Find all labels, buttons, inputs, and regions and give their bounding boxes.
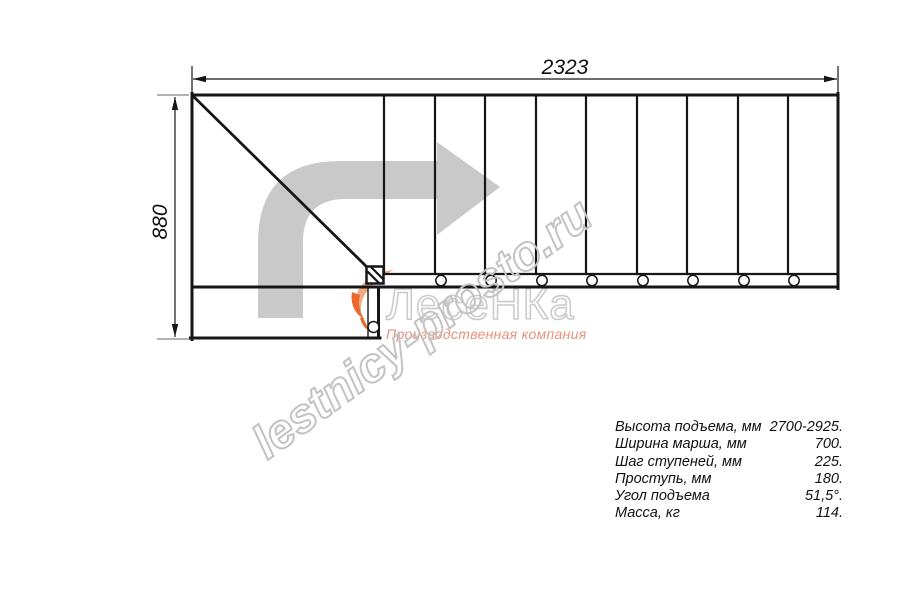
width-dimension: 2323	[192, 56, 838, 92]
specs-table: Высота подъема, мм 2700-2925. Ширина мар…	[615, 419, 843, 523]
spec-label: Шаг ступеней, мм	[615, 454, 742, 471]
spec-row-step-pitch: Шаг ступеней, мм 225.	[615, 454, 843, 471]
spec-value: 51,5°.	[805, 488, 843, 505]
spec-label: Проступь, мм	[615, 471, 711, 488]
dimension-arrowhead	[172, 324, 178, 337]
company-logo: ЛесеНКа Производственная компания	[352, 270, 587, 342]
spec-label: Высота подъема, мм	[615, 419, 762, 436]
width-dimension-label: 2323	[541, 56, 589, 79]
baluster-circle	[638, 275, 648, 285]
baluster-circle	[587, 275, 597, 285]
spec-value: 700.	[815, 436, 843, 453]
spec-value: 180.	[815, 471, 843, 488]
baluster-circle	[537, 275, 547, 285]
dimension-arrowhead	[193, 76, 206, 82]
spec-label: Угол подъема	[615, 488, 710, 505]
height-dimension: 880	[149, 95, 189, 339]
spec-label: Ширина марша, мм	[615, 436, 747, 453]
spec-row-flight-width: Ширина марша, мм 700.	[615, 436, 843, 453]
baluster-circle	[688, 275, 698, 285]
spec-row-climb-angle: Угол подъема 51,5°.	[615, 488, 843, 505]
spec-row-mass: Масса, кг 114.	[615, 505, 843, 522]
logo-subtitle-text: Производственная компания	[386, 326, 587, 342]
center-post	[367, 267, 384, 284]
spec-row-lift-height: Высота подъема, мм 2700-2925.	[615, 419, 843, 436]
height-dimension-label: 880	[149, 204, 172, 239]
spec-value: 114.	[816, 505, 843, 522]
spec-label: Масса, кг	[615, 505, 680, 522]
spec-row-tread-depth: Проступь, мм 180.	[615, 471, 843, 488]
baluster-circle	[486, 275, 496, 285]
spec-value: 2700-2925.	[770, 419, 843, 436]
baluster-circle	[368, 322, 379, 333]
dimension-arrowhead	[172, 97, 178, 110]
spec-value: 225.	[815, 454, 843, 471]
dimension-arrowhead	[824, 76, 837, 82]
baluster-circle	[739, 275, 749, 285]
staircase-drawing-page: ЛесеНКа Производственная компания	[0, 0, 900, 600]
baluster-circle	[789, 275, 799, 285]
baluster-circle	[436, 275, 446, 285]
